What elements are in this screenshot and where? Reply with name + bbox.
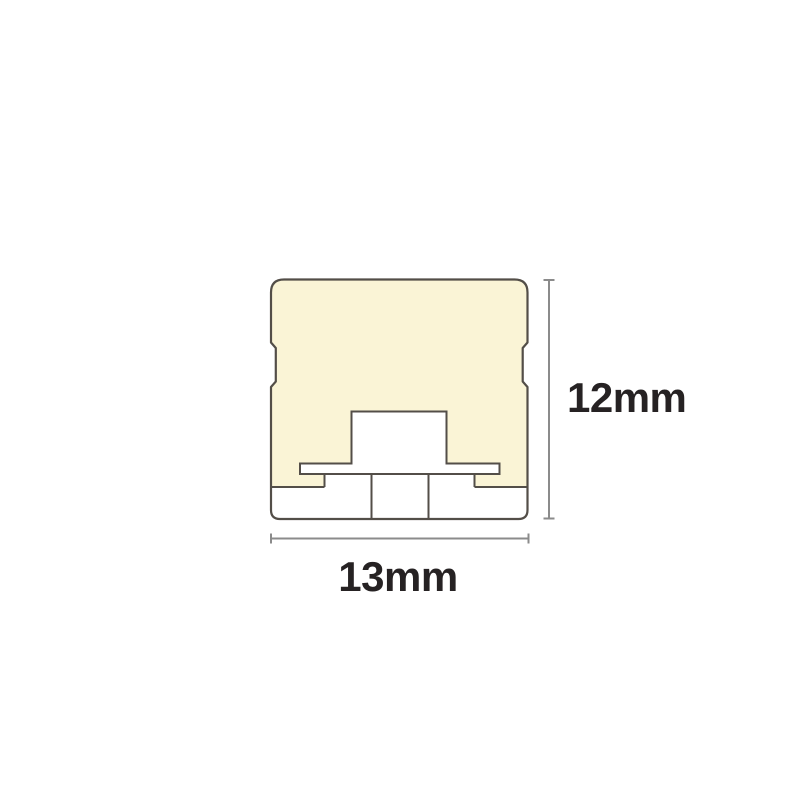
height-dimension-label: 12mm bbox=[567, 374, 686, 421]
neon-flex-profile-diagram: 12mm 13mm bbox=[0, 0, 800, 800]
channel-step bbox=[325, 474, 475, 488]
diagram-canvas: 12mm 13mm bbox=[0, 0, 800, 800]
base-strip bbox=[271, 487, 528, 519]
width-dimension: 13mm bbox=[271, 534, 529, 601]
height-dimension: 12mm bbox=[544, 280, 687, 519]
profile-cross-section bbox=[271, 280, 528, 520]
width-dimension-label: 13mm bbox=[338, 553, 457, 600]
